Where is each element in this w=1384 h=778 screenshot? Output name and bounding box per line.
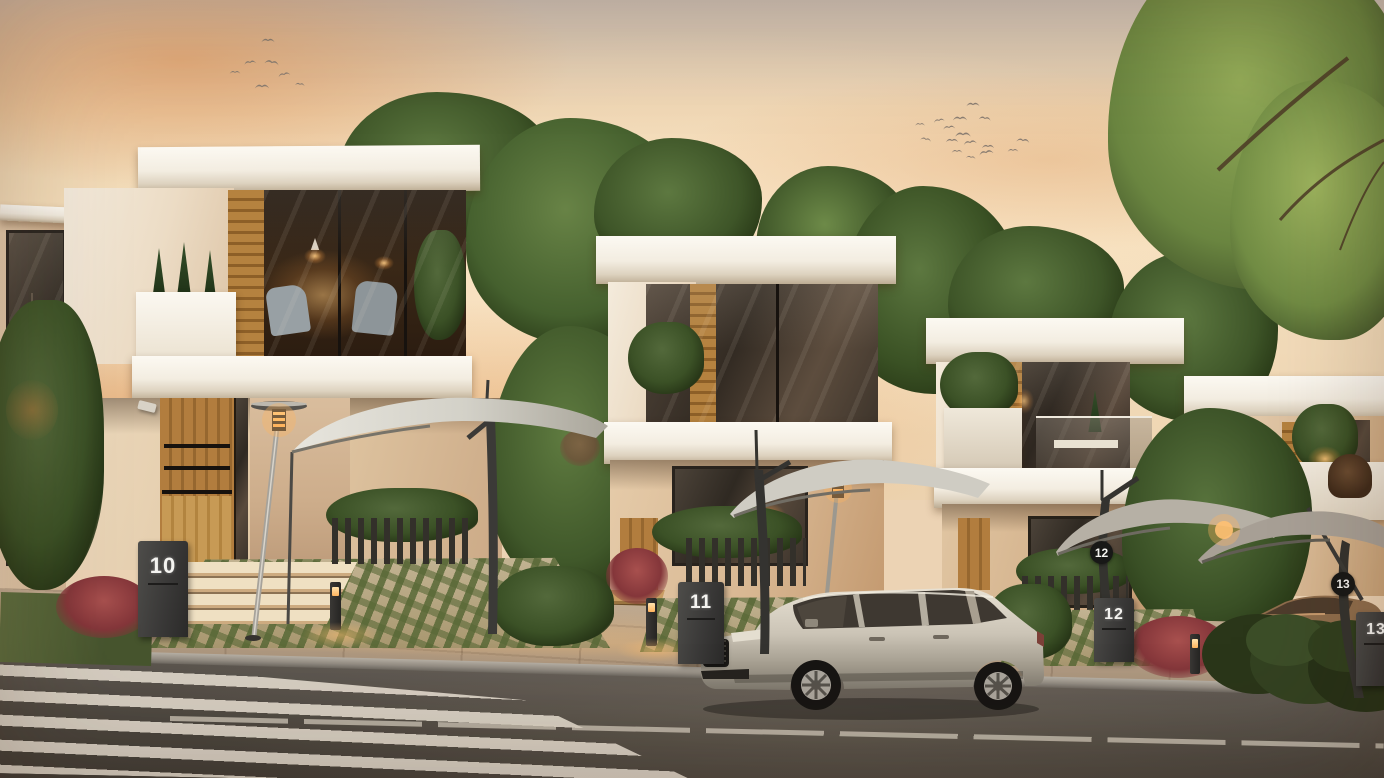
bollard-divider bbox=[148, 583, 178, 585]
house-number-label: 13 bbox=[1366, 621, 1384, 639]
car-rear-wheel bbox=[974, 662, 1022, 710]
street-car bbox=[701, 588, 1044, 720]
house-number-bollard-11: 11 bbox=[678, 582, 724, 664]
rendered-scene: 10 11 12 13 12 13 bbox=[0, 0, 1384, 778]
bollard-divider bbox=[1102, 628, 1126, 630]
house-number-label: 10 bbox=[150, 553, 176, 579]
canopy-post-badge-12: 12 bbox=[1090, 541, 1113, 564]
badge-number: 12 bbox=[1095, 546, 1108, 560]
bollard-divider bbox=[687, 618, 715, 620]
carport-canopy-10 bbox=[288, 380, 608, 634]
house-number-bollard-12: 12 bbox=[1094, 598, 1134, 662]
house-number-label: 11 bbox=[690, 592, 712, 614]
car-front-wheel bbox=[791, 660, 841, 710]
tree-branches bbox=[1218, 58, 1384, 250]
house-number-bollard-10: 10 bbox=[138, 541, 188, 637]
bird-flock-right bbox=[915, 103, 1029, 159]
house-number-bollard-13: 13 bbox=[1356, 612, 1384, 686]
canopy-post-badge-13: 13 bbox=[1331, 572, 1355, 596]
house-number-label: 12 bbox=[1104, 606, 1124, 624]
bollard-divider bbox=[1364, 643, 1384, 645]
street-lamp bbox=[245, 401, 307, 641]
badge-number: 13 bbox=[1336, 577, 1349, 591]
bird-flock-left bbox=[230, 39, 305, 89]
